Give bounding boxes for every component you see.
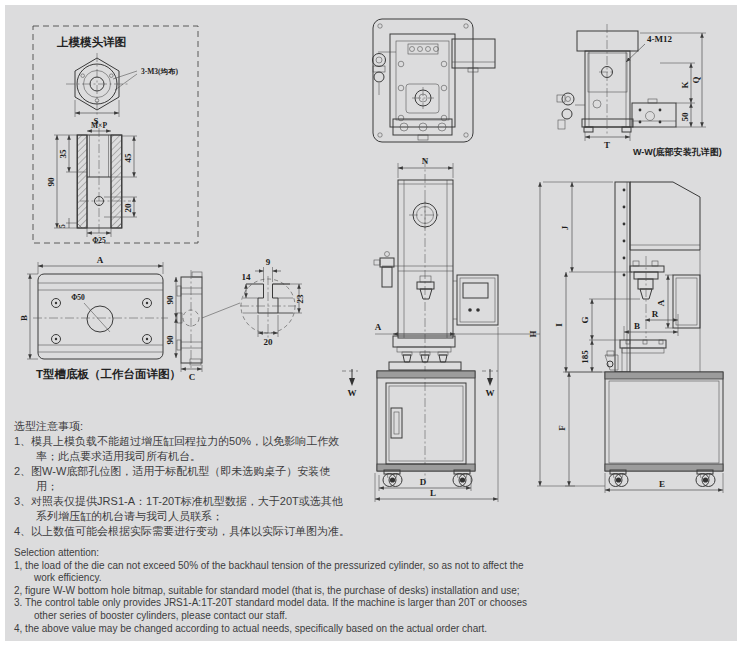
dim-r: R xyxy=(652,309,659,319)
notes-cn-heading: 选型注意事项: xyxy=(14,419,394,434)
notes-en-line: 1, the load of the die can not exceed 50… xyxy=(14,560,734,573)
dim-185: 185 xyxy=(580,350,590,364)
tslot-section-detail: 9 14 23 20 xyxy=(240,257,305,347)
drawing-page: 上模模头详图 3-M3(均布) S xyxy=(0,0,750,664)
dim-5: 5 xyxy=(58,224,67,228)
section-w-left: W xyxy=(348,388,357,398)
dim-f: F xyxy=(557,425,567,431)
notes-en-line: other series of booster cylinders, pleas… xyxy=(14,610,734,623)
notes-english: Selection attention: 1, the load of the … xyxy=(14,547,734,635)
notes-cn-line: 用； xyxy=(14,479,394,494)
notes-chinese: 选型注意事项: 1、模具上模负载不能超过增压缸回程拉力的50%，以免影响工作效 … xyxy=(14,419,394,539)
dim-a-side: A xyxy=(656,299,666,306)
dim-dia50: Φ50 xyxy=(71,293,85,302)
dim-9: 9 xyxy=(266,257,271,267)
dim-l: L xyxy=(430,488,436,498)
dim-90: 90 xyxy=(46,177,56,187)
notes-cn-line: 2、图W-W底部孔位图，适用于标配机型（即未选购桌子）安装使 xyxy=(14,464,394,479)
dim-thread: M×P xyxy=(91,121,107,130)
section-w-right: W xyxy=(486,388,495,398)
dim-k: K xyxy=(680,81,690,88)
notes-en-line: work efficiency. xyxy=(14,572,734,585)
dim-14: 14 xyxy=(242,272,252,282)
die-head-title: 上模模头详图 xyxy=(56,35,126,48)
die-head-detail-view: 上模模头详图 3-M3(均布) S xyxy=(33,26,198,245)
dim-20-section: 20 xyxy=(264,337,274,347)
dim-c: C xyxy=(189,372,196,382)
dim-a-front: A xyxy=(375,322,382,332)
notes-en-line: 3. The control table only provides JRS1-… xyxy=(14,597,734,610)
notes-cn-line: 系列增压缸的机台请与我司人员联系； xyxy=(14,509,394,524)
notes-cn-line: 4、以上数值可能会根据实际需要进行变动，具体以实际订单图为准。 xyxy=(14,524,394,539)
notes-en-line: 4, the above value may be changed accord… xyxy=(14,623,734,636)
ww-caption: W-W(底部安装孔详图) xyxy=(633,146,722,157)
dim-a-plate: A xyxy=(97,255,104,265)
notes-en-line: 2, figure W-W bottom hole bitmap, suitab… xyxy=(14,585,734,598)
dim-50: 50 xyxy=(680,112,690,122)
ww-detail-view: 4-M12 K 50 Q T W-W(底部安装孔详图) xyxy=(557,24,722,157)
dim-23: 23 xyxy=(295,294,305,304)
notes-en-heading: Selection attention: xyxy=(14,547,734,560)
dim-b-plate: B xyxy=(19,315,29,321)
dim-e: E xyxy=(659,479,665,489)
dim-35: 35 xyxy=(58,149,68,159)
dim-20: 20 xyxy=(123,203,133,213)
notes-cn-line: 1、模具上模负载不能超过增压缸回程拉力的50%，以免影响工作效 xyxy=(14,434,394,449)
notes-cn-line: 率；此点要求适用我司所有机台。 xyxy=(14,449,394,464)
dim-90-bottom: 90 xyxy=(165,335,175,345)
dim-h: H xyxy=(528,330,538,337)
dim-i: I xyxy=(554,323,564,327)
control-panel xyxy=(453,275,498,325)
tslot-plate-caption: T型槽底板（工作台面详图） xyxy=(36,367,181,381)
dim-d: D xyxy=(420,477,427,487)
plan-view xyxy=(373,19,496,142)
tslot-plate-view: Φ50 A B T型槽底板（工作台面详图） xyxy=(19,255,240,382)
dim-90-top: 90 xyxy=(165,295,175,305)
dim-q: Q xyxy=(691,76,701,83)
dim-t: T xyxy=(604,140,610,150)
bolt-callout: 4-M12 xyxy=(647,34,672,44)
dim-dia25: Φ25 xyxy=(92,236,106,245)
dim-b-side: B xyxy=(634,321,640,331)
dim-j: J xyxy=(560,225,570,230)
dim-g: G xyxy=(580,316,590,323)
side-view: H A xyxy=(528,182,723,493)
notes-cn-line: 3、对照表仅提供JRS1-A：1T-20T标准机型数据，大于20T或选其他 xyxy=(14,494,394,509)
dim-45: 45 xyxy=(123,153,133,163)
thread-callout: 3-M3(均布) xyxy=(141,67,179,76)
